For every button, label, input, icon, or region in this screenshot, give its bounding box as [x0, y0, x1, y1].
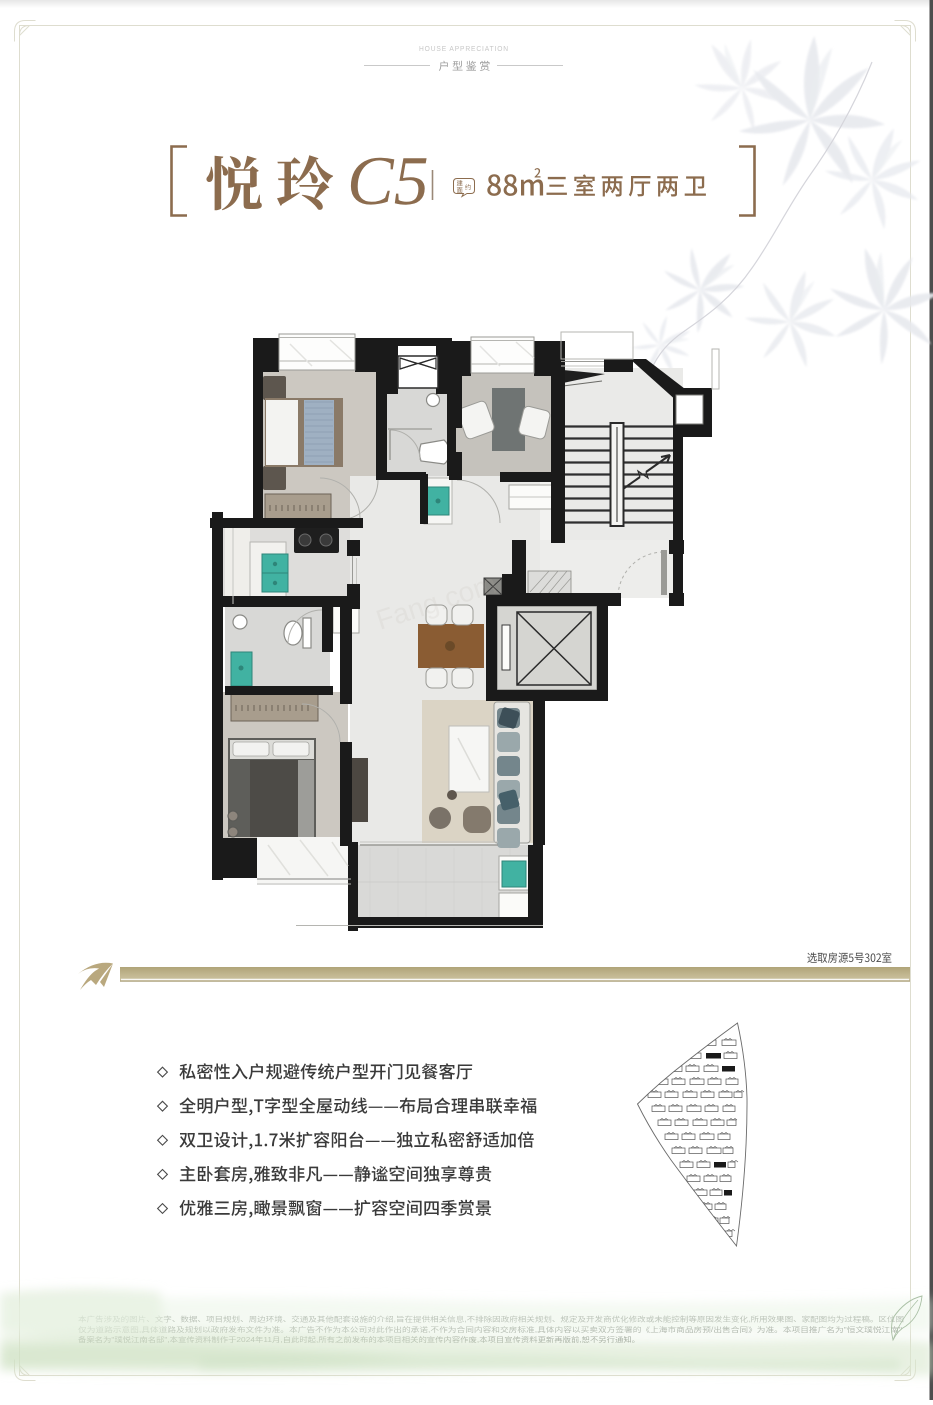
svg-text:HOUSE APPRECIATION: HOUSE APPRECIATION [419, 44, 509, 53]
